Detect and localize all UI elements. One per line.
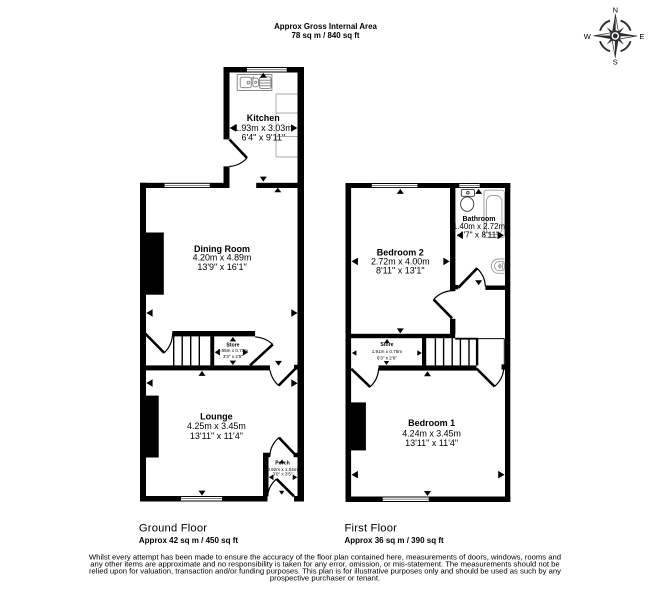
svg-text:1.91m x 0.75m: 1.91m x 0.75m — [372, 349, 403, 354]
svg-text:prospective purchaser or tenan: prospective purchaser or tenant. — [270, 573, 380, 582]
svg-text:Approx 36 sq m / 390 sq ft: Approx 36 sq m / 390 sq ft — [345, 536, 444, 545]
svg-text:W: W — [584, 32, 592, 41]
svg-text:13'9" x 16'1": 13'9" x 16'1" — [197, 262, 246, 272]
svg-text:S: S — [613, 57, 618, 66]
svg-text:78 sq m / 840 sq ft: 78 sq m / 840 sq ft — [292, 31, 360, 40]
svg-text:4'7" x 8'11": 4'7" x 8'11" — [459, 229, 499, 239]
svg-text:6'4" x 9'11": 6'4" x 9'11" — [241, 132, 285, 142]
svg-text:N: N — [613, 5, 618, 14]
svg-text:Bedroom 1: Bedroom 1 — [408, 418, 455, 428]
svg-text:4.24m x 3.45m: 4.24m x 3.45m — [402, 428, 461, 438]
svg-text:First Floor: First Floor — [345, 523, 398, 535]
svg-text:Approx Gross Internal Area: Approx Gross Internal Area — [274, 22, 377, 31]
svg-text:Approx 42 sq m / 450 sq ft: Approx 42 sq m / 450 sq ft — [139, 536, 238, 545]
svg-text:6'3" x 2'6": 6'3" x 2'6" — [377, 355, 397, 360]
svg-text:4.25m x 3.45m: 4.25m x 3.45m — [187, 421, 246, 431]
svg-text:3'3" x 2'5": 3'3" x 2'5" — [223, 354, 243, 359]
svg-text:Lounge: Lounge — [200, 412, 233, 422]
svg-text:8'11" x 13'1": 8'11" x 13'1" — [376, 265, 425, 275]
svg-text:Kitchen: Kitchen — [247, 113, 280, 123]
svg-text:E: E — [639, 32, 644, 41]
svg-text:13'11" x 11'4": 13'11" x 11'4" — [405, 438, 458, 448]
svg-text:13'11" x 11'4": 13'11" x 11'4" — [190, 431, 243, 441]
svg-text:3'0" x 3'5": 3'0" x 3'5" — [272, 472, 292, 477]
svg-text:Ground Floor: Ground Floor — [139, 523, 207, 535]
